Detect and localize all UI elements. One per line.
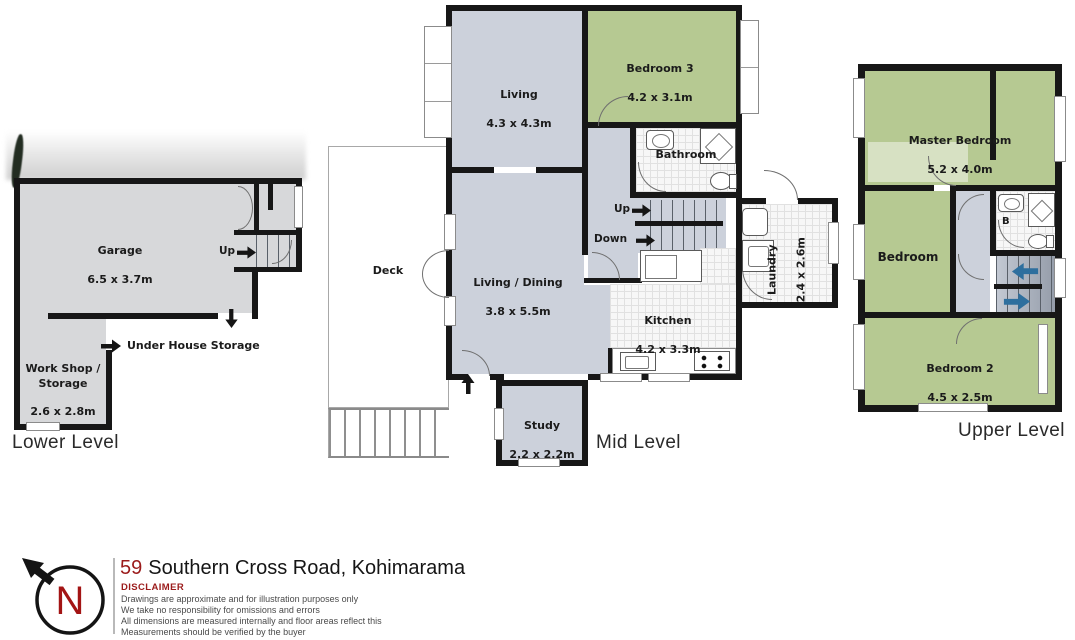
stairs-up-arrow-icon (632, 204, 651, 217)
kitchen-dims: 4.2 x 3.3m (606, 343, 730, 357)
upper-toilet (1028, 234, 1048, 249)
upper-level-title: Upper Level (958, 420, 1065, 442)
mid-level-title: Mid Level (596, 432, 681, 454)
laundry-name: Laundry (766, 230, 780, 310)
toilet-tank (729, 174, 737, 189)
door-arc (764, 170, 798, 200)
window (828, 222, 839, 264)
laundry-dims: 2.4 x 2.6m (794, 230, 808, 310)
window (444, 214, 456, 250)
bedroom-label: Bedroom (868, 250, 948, 266)
window (294, 186, 303, 228)
kitchen-floor-upper (700, 248, 736, 284)
window (648, 373, 690, 382)
stair-divider (994, 284, 1042, 289)
living-label: Living 4.3 x 4.3m (456, 74, 582, 145)
under-house-storage-label: Under House Storage (127, 339, 260, 352)
window (853, 224, 865, 280)
wall (446, 5, 742, 11)
master-dims: 5.2 x 4.0m (880, 163, 1040, 177)
wall (858, 64, 1062, 71)
wall (858, 312, 1062, 318)
workshop-label: Work Shop / Storage 2.6 x 2.8m (18, 348, 108, 434)
lower-level-title: Lower Level (12, 432, 119, 454)
wall (446, 167, 494, 173)
stairs-arrow-right-icon (998, 293, 1036, 310)
bedroom3-name: Bedroom 3 (590, 62, 730, 76)
wall (252, 272, 258, 319)
roof-blur-band (6, 131, 306, 180)
wall (234, 230, 302, 235)
floor-plan-canvas: Garage 6.5 x 3.7m Work Shop / Storage 2.… (0, 0, 1075, 640)
stairs-arrow-left-icon (1006, 263, 1044, 280)
kitchen-label: Kitchen 4.2 x 3.3m (606, 300, 730, 371)
bay-window (740, 20, 759, 114)
wall (630, 192, 742, 198)
workshop-dims: 2.6 x 2.8m (18, 405, 108, 419)
bedroom2-label: Bedroom 2 4.5 x 2.5m (865, 348, 1055, 419)
wall (736, 198, 766, 204)
workshop-name: Work Shop / Storage (18, 362, 108, 391)
wall (582, 380, 588, 466)
living-dims: 4.3 x 4.3m (456, 117, 582, 131)
lower-up-label: Up (219, 245, 235, 257)
living-dining-name: Living / Dining (452, 276, 584, 290)
wall (254, 182, 259, 234)
window (1054, 258, 1066, 298)
wall (630, 127, 636, 198)
bay-window (424, 26, 452, 138)
window (600, 373, 642, 382)
bathroom-label: Bathroom (640, 148, 732, 162)
upper-bath-sink (998, 194, 1024, 212)
study-dims: 2.2 x 2.2m (504, 448, 580, 462)
living-dining-dims: 3.8 x 5.5m (452, 305, 584, 319)
upper-shower (1028, 193, 1055, 227)
hall-floor (588, 128, 630, 198)
window (853, 324, 865, 390)
down-to-storage-arrow-icon (225, 309, 238, 328)
disclaimer-line: We take no responsibility for omissions … (121, 605, 382, 616)
wall (582, 124, 588, 255)
north-compass: N (18, 556, 118, 638)
living-name: Living (456, 88, 582, 102)
wall (990, 191, 996, 256)
kitchen-name: Kitchen (606, 314, 730, 328)
wall (48, 313, 218, 319)
entry-arrow-icon (461, 374, 475, 394)
master-name: Master Bedroom (880, 134, 1040, 148)
upper-toilet-tank (1046, 235, 1054, 248)
disclaimer-line: Measurements should be verified by the b… (121, 627, 382, 638)
address-number: 59 (120, 557, 142, 579)
disclaimer-title: DISCLAIMER (121, 582, 184, 593)
compass-arrow-shaft (35, 569, 52, 582)
mid-down-label: Down (594, 233, 627, 245)
disclaimer-text: Drawings are approximate and for illustr… (121, 594, 382, 638)
wall (582, 5, 588, 127)
study-name: Study (504, 419, 580, 433)
disclaimer-line: Drawings are approximate and for illustr… (121, 594, 382, 605)
laundry-label: Laundry 2.4 x 2.6m (751, 230, 822, 310)
fridge (640, 250, 702, 282)
footer-divider (113, 558, 115, 634)
garage-name: Garage (58, 244, 182, 258)
address-line: 59Southern Cross Road, Kohimarama (120, 557, 465, 580)
window (494, 408, 504, 440)
up-stairs-arrow-icon (237, 246, 256, 259)
deck-label: Deck (330, 264, 446, 278)
bedroom3-dims: 4.2 x 3.1m (590, 91, 730, 105)
wall (502, 380, 588, 386)
wall (536, 167, 588, 173)
bedroom2-dims: 4.5 x 2.5m (865, 391, 1055, 405)
bathroom-sink (646, 130, 674, 150)
bedroom2-name: Bedroom 2 (865, 362, 1055, 376)
stair-divider (635, 221, 723, 226)
wall (234, 267, 302, 272)
deck-railing (328, 408, 449, 458)
garage-label: Garage 6.5 x 3.7m (58, 230, 182, 301)
living-dining-label: Living / Dining 3.8 x 5.5m (452, 262, 584, 333)
address-street: Southern Cross Road, Kohimarama (148, 557, 465, 579)
wall (268, 182, 273, 210)
upper-bath-label: B (1002, 216, 1010, 227)
window (853, 78, 865, 138)
bedroom3-label: Bedroom 3 4.2 x 3.1m (590, 48, 730, 119)
study-label: Study 2.2 x 2.2m (504, 405, 580, 476)
garage-dims: 6.5 x 3.7m (58, 273, 182, 287)
window (1054, 96, 1066, 162)
north-letter: N (56, 579, 85, 623)
stairs-down-arrow-icon (636, 234, 655, 247)
under-house-arrow-icon (101, 339, 121, 353)
disclaimer-line: All dimensions are measured internally a… (121, 616, 382, 627)
mid-up-label: Up (612, 203, 630, 215)
wall (990, 250, 1062, 256)
wall (950, 185, 956, 318)
master-bedroom-label: Master Bedroom 5.2 x 4.0m (880, 120, 1040, 191)
